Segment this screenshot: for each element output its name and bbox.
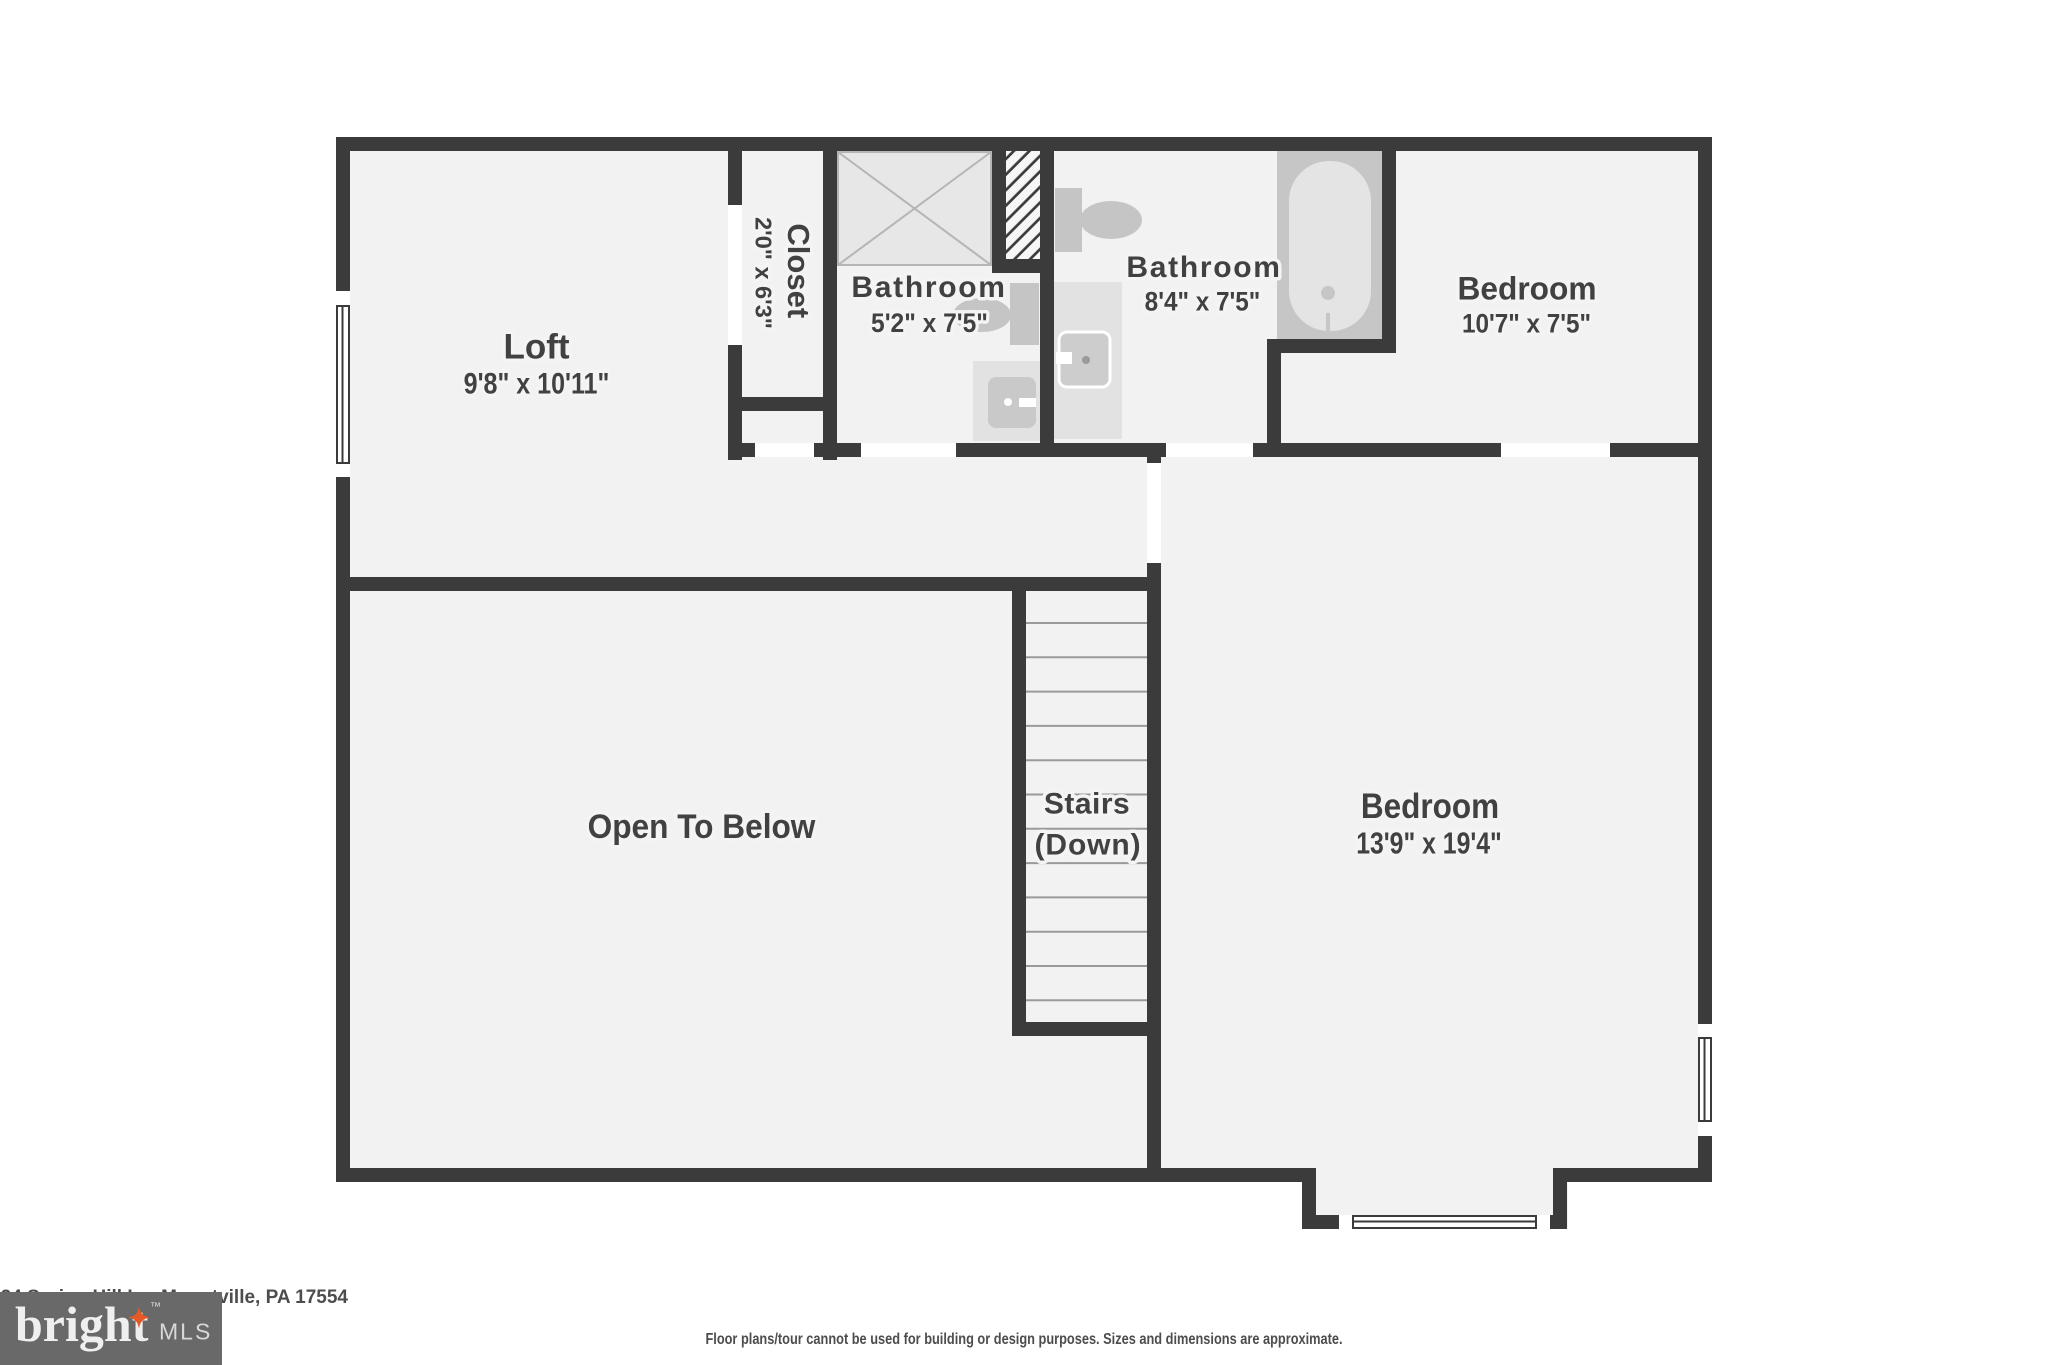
svg-text:Floor plans/tour cannot be use: Floor plans/tour cannot be used for buil…: [705, 1331, 1342, 1349]
svg-text:Stairs: Stairs: [1044, 788, 1130, 821]
svg-text:Open To Below: Open To Below: [588, 807, 816, 845]
svg-text:(Down): (Down): [1034, 828, 1141, 861]
svg-text:9'8" x 10'11": 9'8" x 10'11": [464, 366, 610, 400]
svg-text:™: ™: [150, 1301, 161, 1313]
svg-text:bright: bright: [15, 1296, 149, 1352]
svg-text:8'4" x 7'5": 8'4" x 7'5": [1145, 287, 1261, 316]
svg-text:Bathroom: Bathroom: [851, 271, 1006, 304]
svg-text:Bathroom: Bathroom: [1126, 251, 1281, 284]
svg-text:10'7" x 7'5": 10'7" x 7'5": [1462, 309, 1591, 338]
svg-text:Bedroom: Bedroom: [1361, 787, 1499, 826]
svg-text:Loft: Loft: [503, 328, 569, 367]
svg-text:Bedroom: Bedroom: [1458, 270, 1597, 306]
svg-text:Closet 2'0" x 6'3": Closet 2'0" x 6'3": [751, 217, 817, 329]
svg-text:5'2" x 7'5": 5'2" x 7'5": [871, 309, 988, 338]
svg-text:13'9" x 19'4": 13'9" x 19'4": [1356, 826, 1502, 860]
svg-text:MLS: MLS: [159, 1319, 212, 1345]
